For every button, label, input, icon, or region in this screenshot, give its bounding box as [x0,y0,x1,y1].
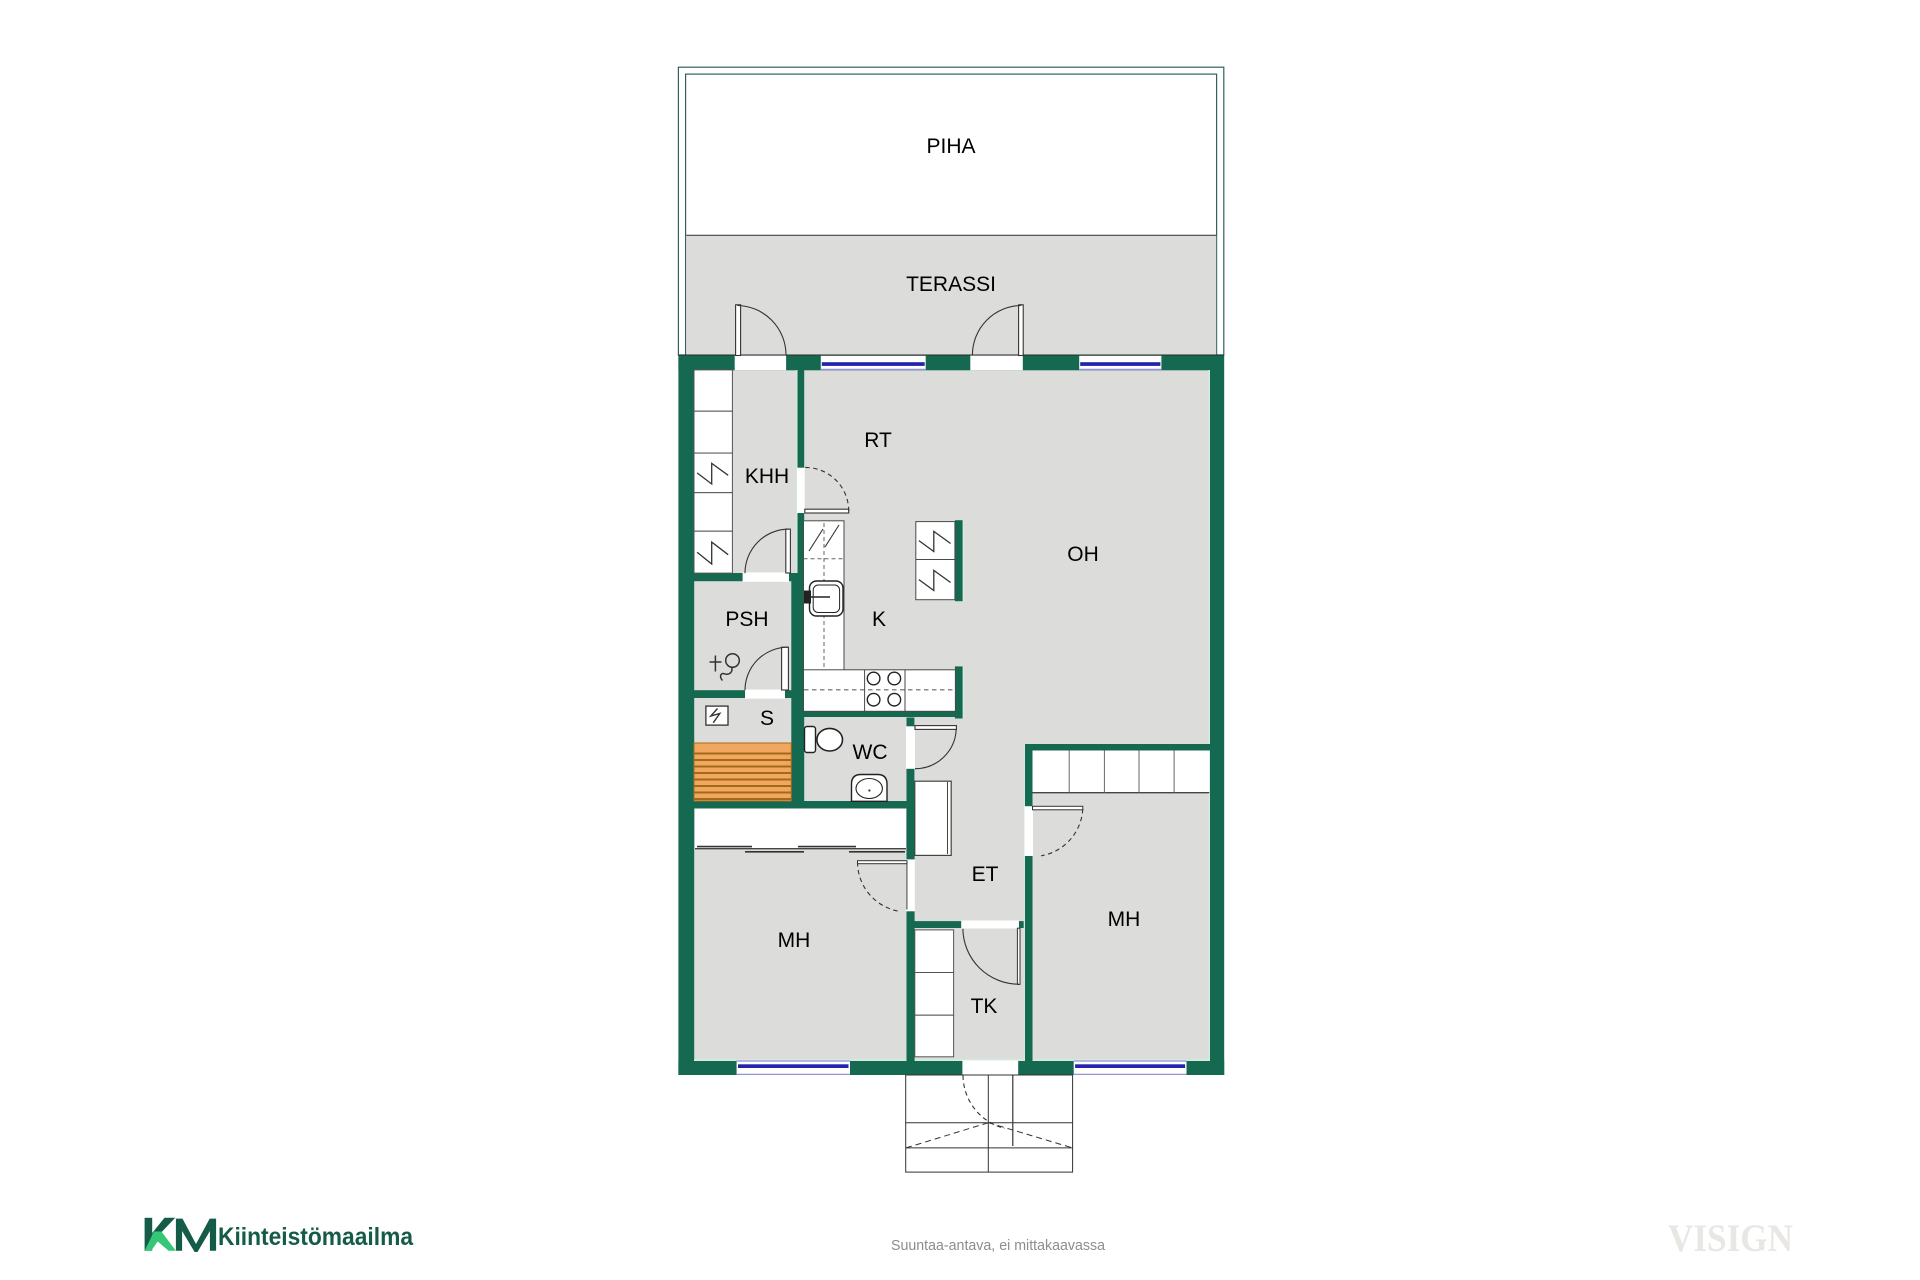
svg-text:RT: RT [864,429,892,452]
svg-text:TERASSI: TERASSI [906,273,996,296]
svg-text:TK: TK [971,995,998,1018]
svg-text:S: S [760,707,774,730]
svg-text:KHH: KHH [745,465,789,488]
svg-text:Kiinteistömaailma: Kiinteistömaailma [218,1223,414,1251]
svg-text:MH: MH [778,929,811,952]
svg-text:MH: MH [1108,908,1141,931]
svg-text:ET: ET [972,863,999,886]
svg-text:VISIGN: VISIGN [1668,1217,1793,1260]
svg-text:WC: WC [853,741,888,764]
svg-text:PIHA: PIHA [926,135,975,158]
svg-text:Suuntaa-antava, ei mittakaavas: Suuntaa-antava, ei mittakaavassa [891,1238,1106,1254]
svg-text:K: K [872,608,886,631]
svg-text:PSH: PSH [725,608,768,631]
svg-text:OH: OH [1067,543,1099,566]
